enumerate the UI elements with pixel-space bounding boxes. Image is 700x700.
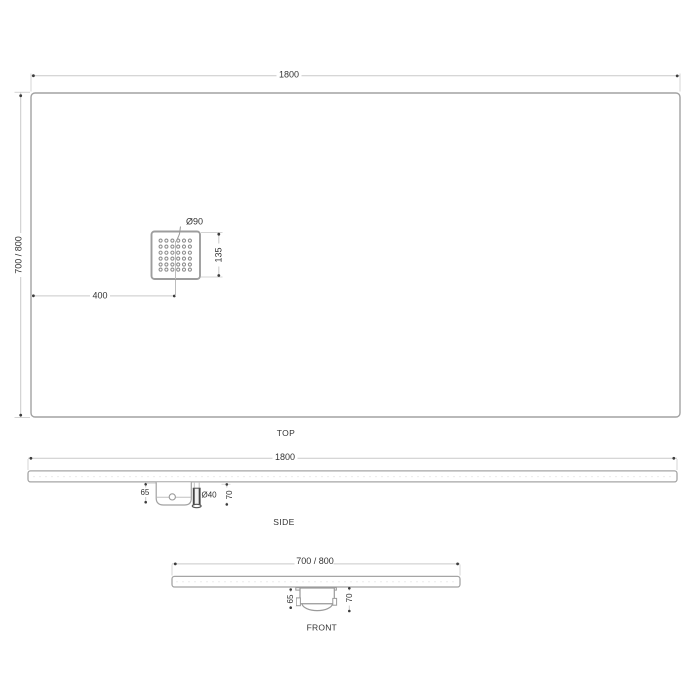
svg-text:135: 135	[213, 247, 223, 262]
svg-text:700 / 800: 700 / 800	[296, 556, 334, 566]
svg-text:TOP: TOP	[277, 428, 296, 438]
svg-text:1800: 1800	[279, 70, 299, 80]
svg-text:1800: 1800	[275, 452, 295, 462]
svg-text:FRONT: FRONT	[307, 623, 337, 633]
svg-text:65: 65	[140, 488, 149, 497]
svg-text:SIDE: SIDE	[273, 517, 294, 527]
svg-text:65: 65	[286, 594, 295, 603]
svg-text:Ø40: Ø40	[202, 490, 218, 499]
svg-text:700 / 800: 700 / 800	[14, 236, 24, 274]
svg-text:70: 70	[345, 593, 354, 602]
svg-text:Ø90: Ø90	[186, 217, 203, 227]
svg-text:70: 70	[225, 490, 234, 499]
svg-text:400: 400	[92, 291, 107, 301]
